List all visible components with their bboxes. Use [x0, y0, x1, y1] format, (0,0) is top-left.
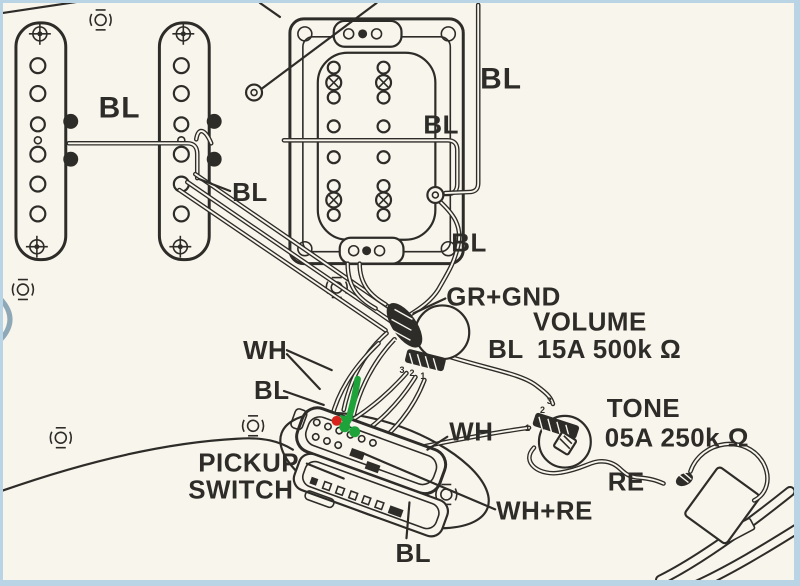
label-middle-wire-bl: BL	[232, 179, 268, 207]
label-neck-wire-bl: BL	[99, 91, 141, 124]
label-switch-black-bl: BL	[254, 377, 290, 405]
label-bridge-out-wire-bl: BL	[451, 230, 487, 258]
label-wh-re: WH+RE	[496, 497, 593, 525]
output-jack	[661, 444, 794, 580]
label-volume-wire-bl: BL	[488, 336, 524, 364]
label-switch: SWITCH	[188, 476, 293, 504]
label-jack-re: RE	[608, 468, 645, 496]
label-gr-gnd: GR+GND	[446, 283, 561, 311]
scanned-wiring-diagram: 3 2 1 3 2 1	[0, 0, 800, 586]
label-volume-value: 15A 500k Ω	[537, 336, 681, 364]
label-tone-white-wh: WH	[449, 419, 493, 447]
green-dot-1	[339, 421, 350, 432]
label-bridge-top-wire-bl: BL	[480, 63, 522, 96]
volume-lug-2: 2	[409, 368, 414, 378]
label-bottom-bl: BL	[396, 540, 432, 568]
label-tone-value: 05A 250k Ω	[605, 425, 749, 453]
label-tone-title: TONE	[607, 395, 680, 423]
volume-lug-1: 1	[420, 371, 425, 381]
tone-lug-2: 2	[540, 405, 545, 415]
label-pickup: PICKUP	[198, 450, 299, 478]
volume-lug-3: 3	[399, 365, 404, 375]
tone-lug-1: 1	[525, 423, 530, 433]
tone-lug-3: 3	[547, 396, 552, 406]
green-dot-2	[349, 426, 360, 437]
label-bridge-mid-wire-bl: BL	[423, 111, 459, 139]
tone-pot: 3 2 1	[525, 396, 591, 468]
diagram-canvas: 3 2 1 3 2 1	[3, 3, 794, 580]
label-volume-title: VOLUME	[533, 308, 647, 336]
label-switch-white-wh: WH	[243, 337, 287, 365]
